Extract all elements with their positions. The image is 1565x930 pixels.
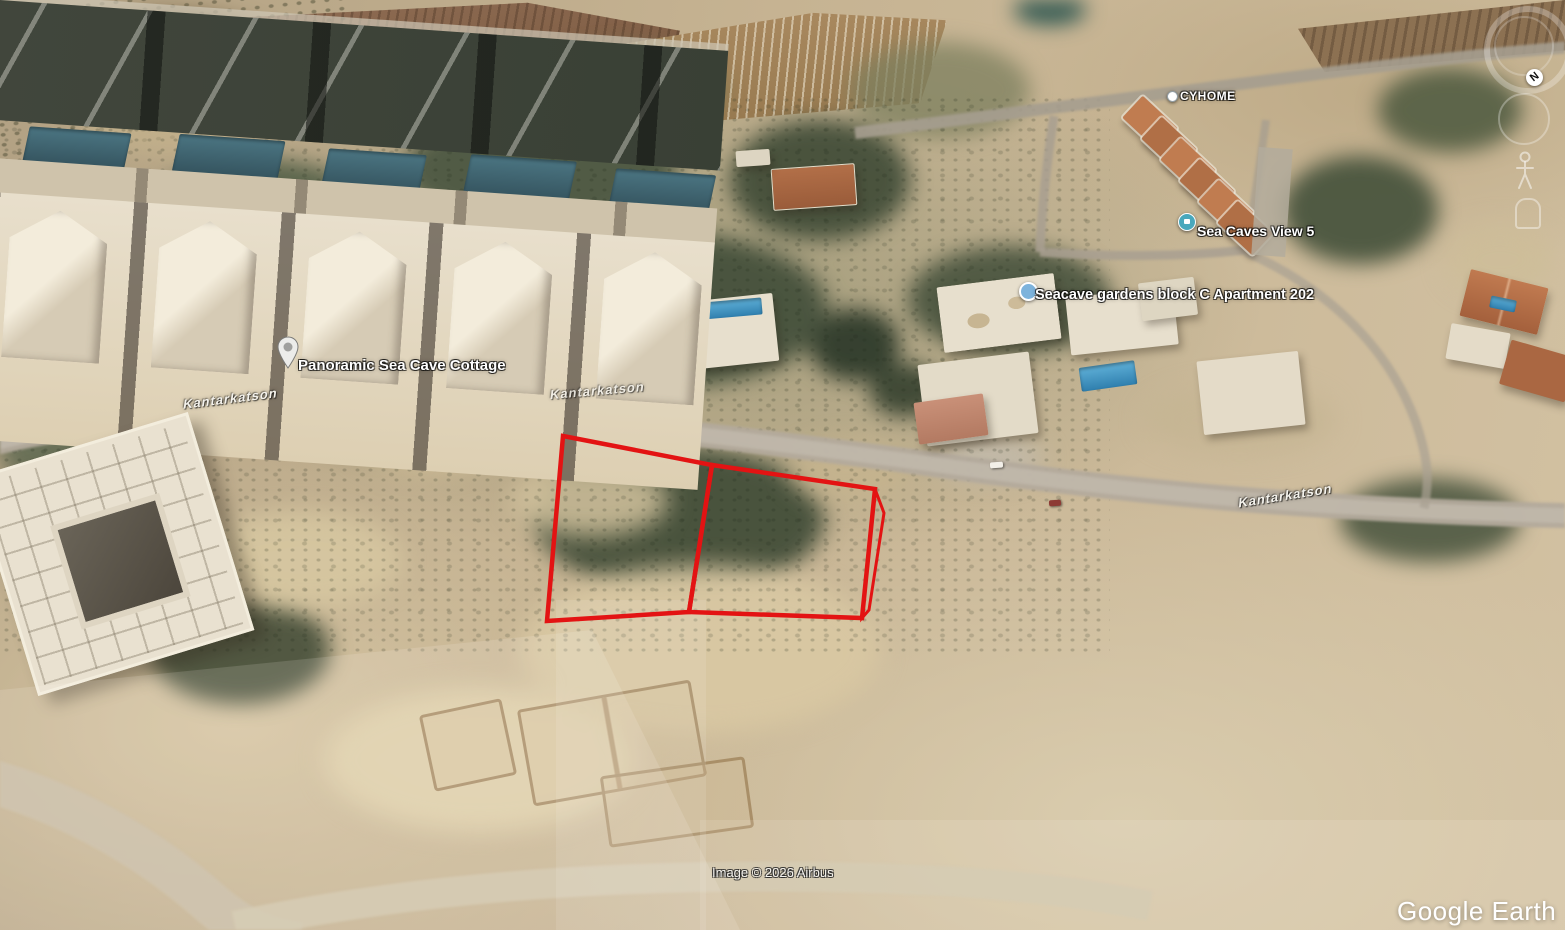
plot-outline-overlay <box>0 0 1565 930</box>
poi-dot-marker[interactable] <box>1167 91 1178 102</box>
lodging-marker[interactable] <box>1178 213 1196 231</box>
place-label-sea-caves-view-5[interactable]: Sea Caves View 5 <box>1197 223 1314 239</box>
zoom-control[interactable] <box>1515 198 1541 229</box>
compass-north-label: N <box>1528 71 1541 85</box>
compass-north-button[interactable]: N <box>1526 69 1543 86</box>
place-label-panoramic-sea-cave-cottage[interactable]: Panoramic Sea Cave Cottage <box>298 357 506 374</box>
imagery-attribution: Image © 2026 Airbus <box>712 865 834 880</box>
plot-outline-sliver[interactable] <box>862 489 884 618</box>
pin-marker[interactable] <box>276 336 300 370</box>
google-earth-logo: Google Earth <box>1397 896 1556 927</box>
place-label-cyhome[interactable]: CYHOME <box>1180 89 1236 103</box>
bed-icon <box>1184 219 1190 224</box>
plot-outline-east[interactable] <box>689 465 875 618</box>
pegman-icon[interactable] <box>1513 150 1537 194</box>
google-earth-viewport[interactable]: CYHOME Sea Caves View 5 Seacave gardens … <box>0 0 1565 930</box>
place-label-seacave-gardens[interactable]: Seacave gardens block C Apartment 202 <box>1035 287 1314 303</box>
compass-inner-ring <box>1494 16 1554 76</box>
pan-control-ring[interactable] <box>1498 93 1550 145</box>
plot-outline-west[interactable] <box>547 436 712 621</box>
